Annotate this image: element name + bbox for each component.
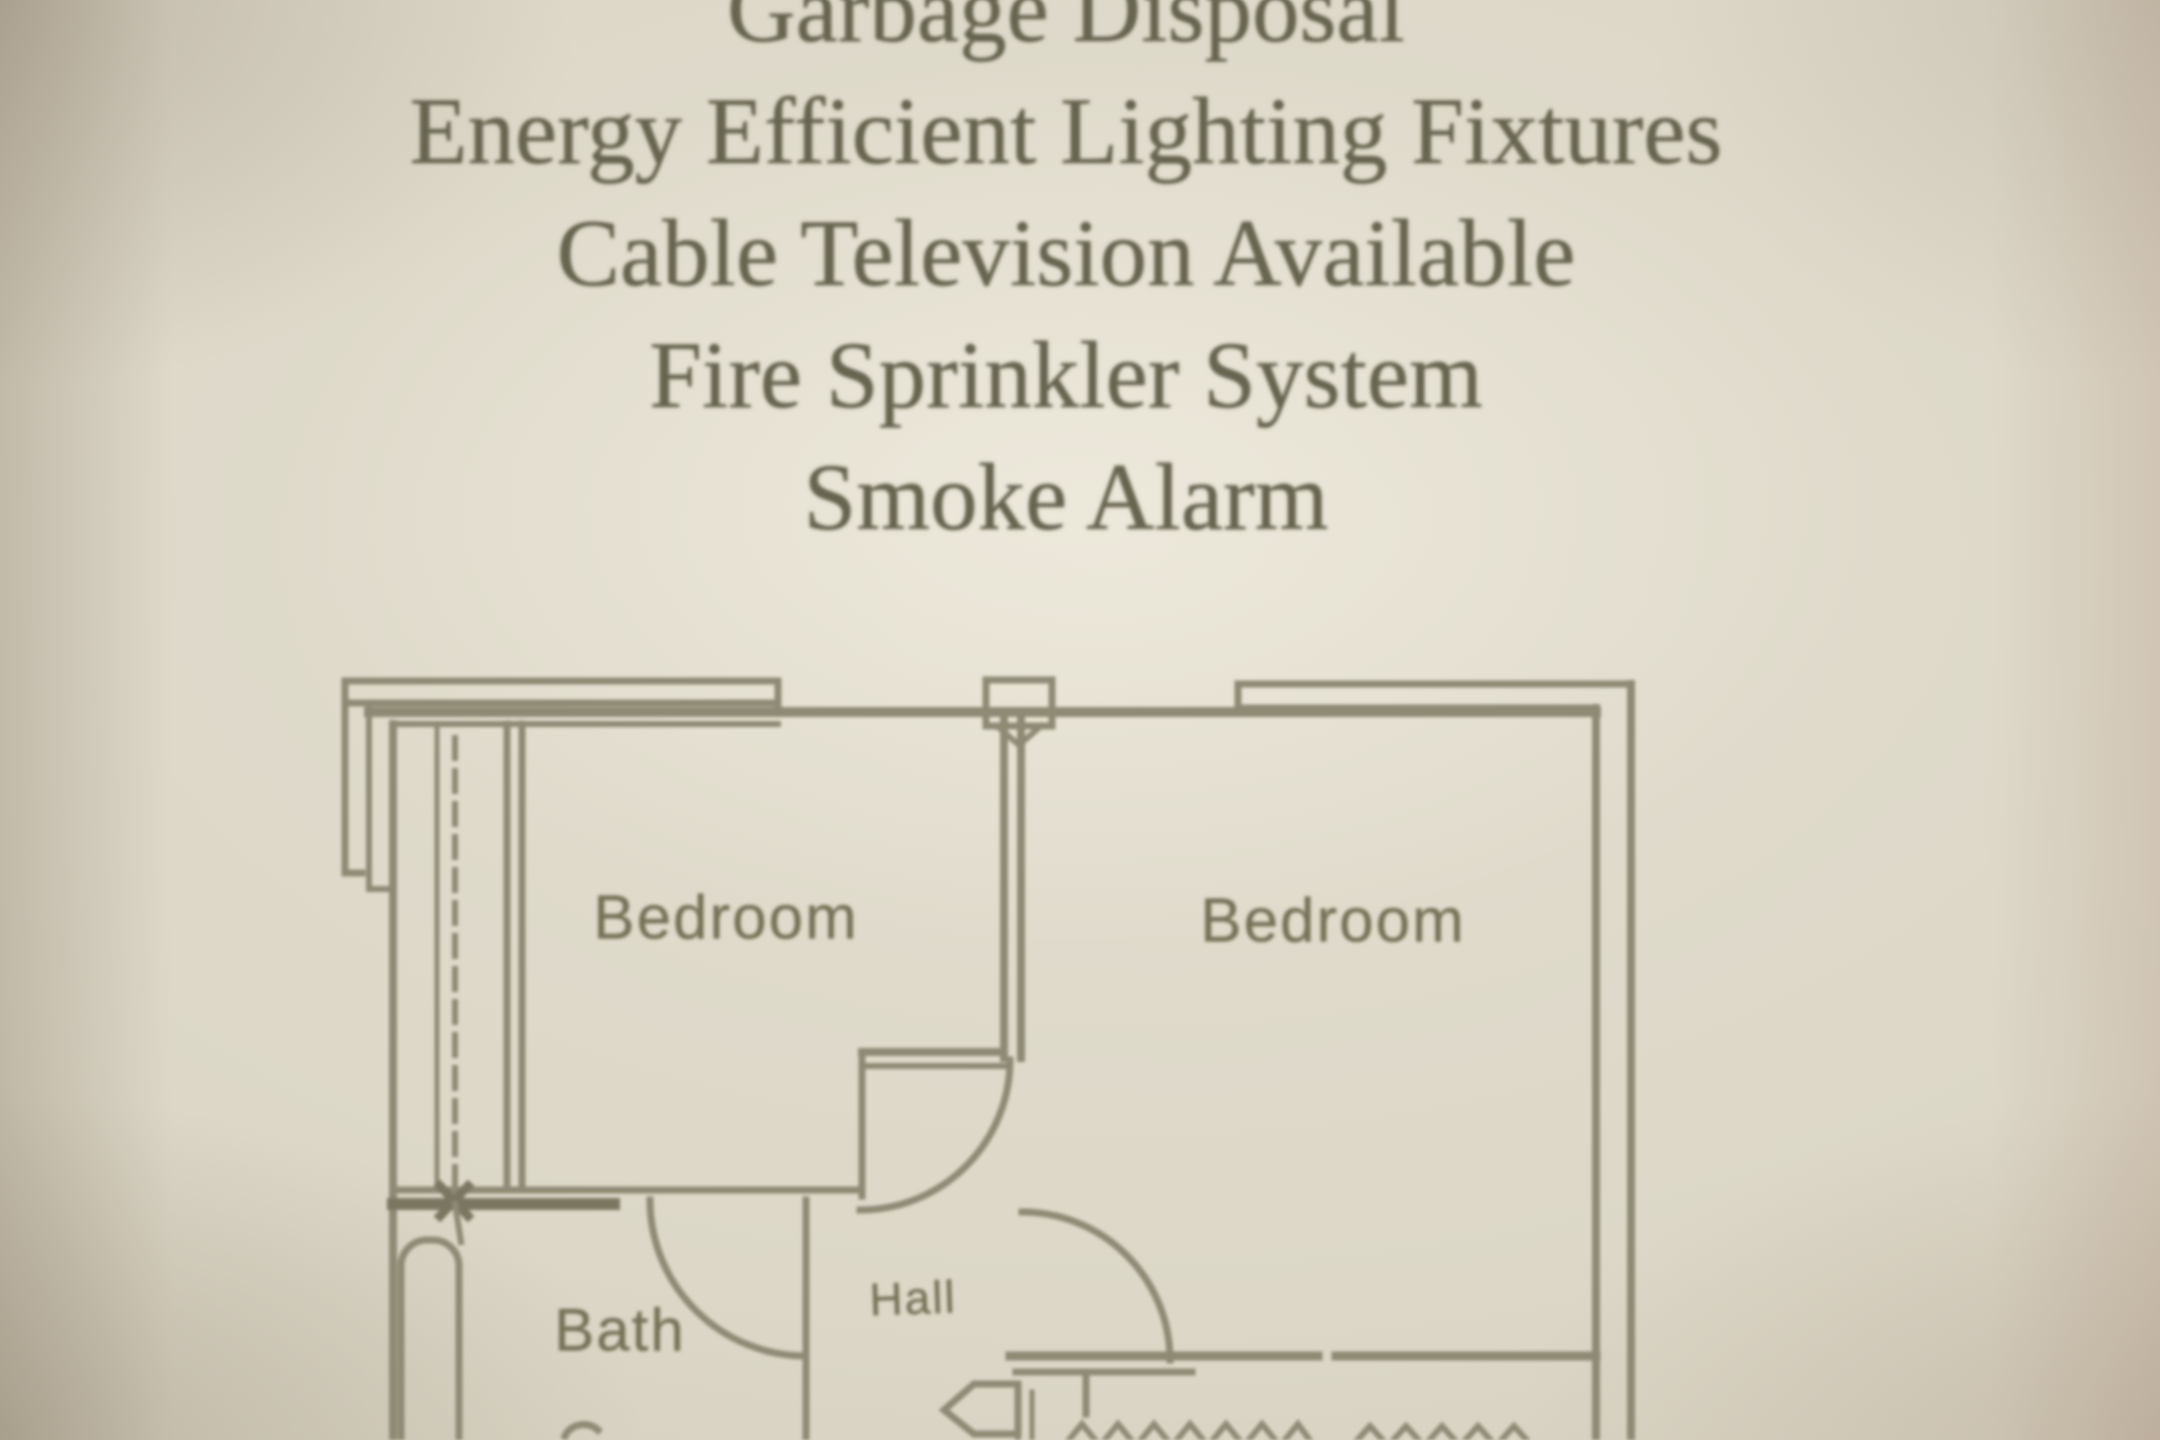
room-label-bath: Bath [554,1296,685,1365]
flyer-photo: Garbage Disposal Energy Efficient Lighti… [0,0,2160,1440]
room-label-bedroom-left: Bedroom [593,883,859,954]
photo-content: Garbage Disposal Energy Efficient Lighti… [0,0,2160,1440]
bathtub [401,1240,459,1440]
entry-door-arrow [944,1384,1018,1434]
closet-bifold-zigzag-right [1352,1426,1532,1440]
closet-bifold-zigzag-left [1064,1424,1314,1440]
floor-plan-drawing [0,0,2160,1440]
room-label-hall: Hall [868,1269,957,1326]
bedroom-left-door-arc [860,1060,1010,1210]
bedroom-right-door-arc [1022,1212,1170,1360]
cutoff-text-mark [565,1425,598,1436]
room-label-bedroom-right: Bedroom [1200,886,1466,957]
